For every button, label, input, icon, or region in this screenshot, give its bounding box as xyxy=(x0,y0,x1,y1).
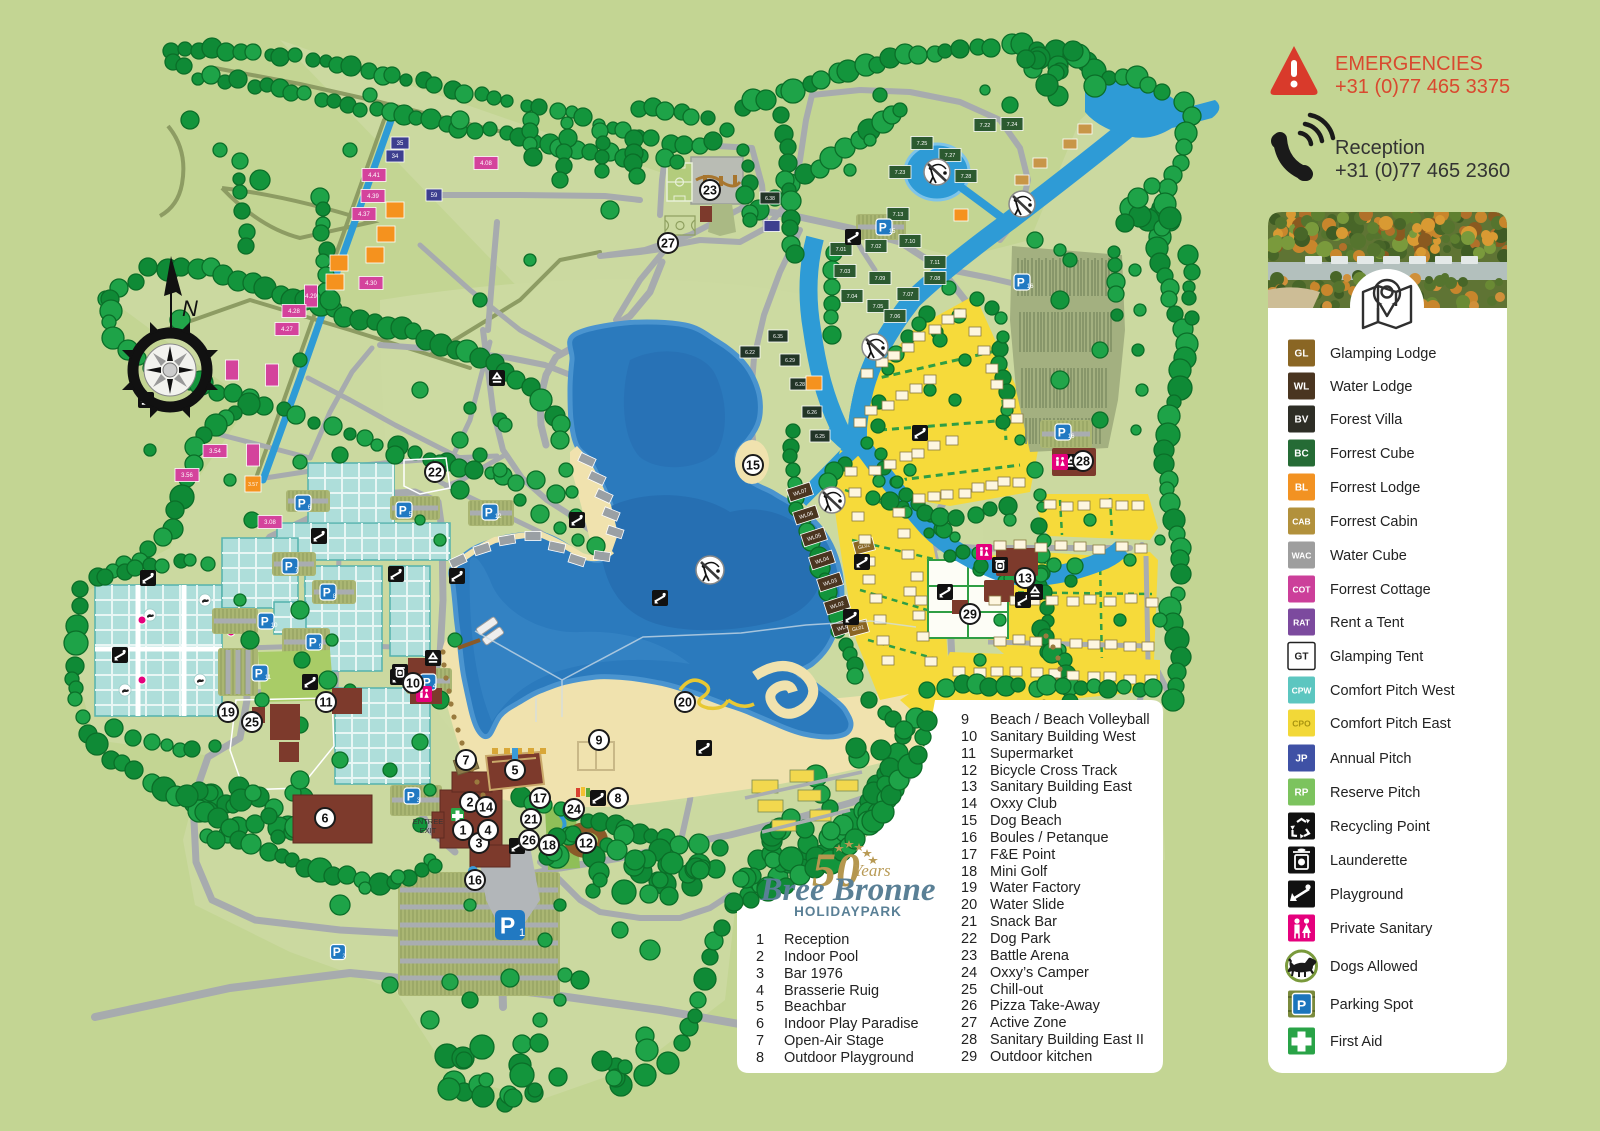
svg-text:F&E Point: F&E Point xyxy=(990,847,1055,863)
svg-text:4.41: 4.41 xyxy=(368,173,380,179)
svg-text:Bree Bronne: Bree Bronne xyxy=(759,872,935,908)
svg-text:26: 26 xyxy=(522,834,536,848)
svg-text:Outdoor kitchen: Outdoor kitchen xyxy=(990,1049,1092,1065)
svg-text:Reception: Reception xyxy=(784,932,849,948)
svg-text:23: 23 xyxy=(703,184,717,198)
svg-text:Recycling Point: Recycling Point xyxy=(1330,819,1430,835)
svg-text:19: 19 xyxy=(961,880,977,896)
svg-text:13: 13 xyxy=(961,779,977,795)
svg-text:Sanitary Building East II: Sanitary Building East II xyxy=(990,1032,1144,1048)
svg-text:25: 25 xyxy=(245,716,259,730)
svg-text:Dog Park: Dog Park xyxy=(990,931,1051,947)
svg-text:12: 12 xyxy=(961,763,977,779)
svg-text:9: 9 xyxy=(596,734,603,748)
svg-text:BV: BV xyxy=(1295,415,1309,426)
svg-text:16: 16 xyxy=(1027,284,1034,290)
svg-text:4.30: 4.30 xyxy=(365,281,377,287)
svg-text:15: 15 xyxy=(746,459,760,473)
svg-text:RAT: RAT xyxy=(1293,618,1311,628)
svg-text:Forrest Cottage: Forrest Cottage xyxy=(1330,582,1431,598)
svg-text:Reception: Reception xyxy=(1335,137,1425,159)
svg-text:7.10: 7.10 xyxy=(905,239,916,245)
svg-text:Chill-out: Chill-out xyxy=(990,982,1043,998)
svg-text:1: 1 xyxy=(756,932,764,948)
svg-text:12: 12 xyxy=(579,837,593,851)
svg-text:P: P xyxy=(485,505,493,519)
svg-text:21: 21 xyxy=(961,914,977,930)
svg-text:18: 18 xyxy=(961,864,977,880)
svg-text:Sanitary Building East: Sanitary Building East xyxy=(990,779,1132,795)
svg-text:P: P xyxy=(309,635,317,649)
svg-text:19: 19 xyxy=(221,706,235,720)
svg-text:27: 27 xyxy=(661,237,675,251)
svg-text:29: 29 xyxy=(963,608,977,622)
svg-text:23: 23 xyxy=(961,948,977,964)
svg-text:P: P xyxy=(285,559,293,573)
svg-text:7.13: 7.13 xyxy=(893,212,904,218)
svg-text:11: 11 xyxy=(961,746,976,762)
svg-text:Battle Arena: Battle Arena xyxy=(990,948,1070,964)
svg-text:7.02: 7.02 xyxy=(871,244,882,250)
svg-text:Bar 1976: Bar 1976 xyxy=(784,966,843,982)
svg-text:First Aid: First Aid xyxy=(1330,1034,1382,1050)
svg-text:6.29: 6.29 xyxy=(785,358,795,364)
svg-text:11: 11 xyxy=(319,696,332,710)
svg-text:4.27: 4.27 xyxy=(281,327,293,333)
svg-text:28: 28 xyxy=(1076,455,1090,469)
svg-text:Oxxy’s Camper: Oxxy’s Camper xyxy=(990,965,1089,981)
svg-text:26: 26 xyxy=(961,998,977,1014)
svg-text:Annual Pitch: Annual Pitch xyxy=(1330,751,1411,767)
svg-text:4.37: 4.37 xyxy=(358,212,370,218)
svg-text:Comfort Pitch East: Comfort Pitch East xyxy=(1330,716,1451,732)
svg-text:ENTREE: ENTREE xyxy=(413,817,443,826)
svg-text:Forrest Lodge: Forrest Lodge xyxy=(1330,480,1420,496)
svg-text:12: 12 xyxy=(495,514,502,520)
svg-text:7.07: 7.07 xyxy=(903,292,914,298)
svg-text:1: 1 xyxy=(519,927,525,939)
svg-text:6.28: 6.28 xyxy=(795,382,805,388)
svg-text:10: 10 xyxy=(961,729,977,745)
svg-text:Boules / Petanque: Boules / Petanque xyxy=(990,830,1109,846)
svg-text:20: 20 xyxy=(961,897,977,913)
svg-text:Beachbar: Beachbar xyxy=(784,999,846,1015)
svg-text:6.25: 6.25 xyxy=(815,434,825,440)
svg-text:EXIT: EXIT xyxy=(420,826,437,835)
svg-text:Active Zone: Active Zone xyxy=(990,1015,1067,1031)
svg-text:24: 24 xyxy=(961,965,977,981)
svg-text:Playground: Playground xyxy=(1330,887,1403,903)
svg-text:Forrest Cabin: Forrest Cabin xyxy=(1330,514,1418,530)
svg-text:P: P xyxy=(333,945,341,959)
svg-text:25: 25 xyxy=(961,982,977,998)
svg-text:4: 4 xyxy=(485,824,492,838)
svg-text:Sanitary Building West: Sanitary Building West xyxy=(990,729,1136,745)
svg-text:Bicycle Cross Track: Bicycle Cross Track xyxy=(990,763,1118,779)
svg-text:5: 5 xyxy=(756,999,764,1015)
svg-text:Mini Golf: Mini Golf xyxy=(990,864,1048,880)
svg-text:Glamping Tent: Glamping Tent xyxy=(1330,649,1423,665)
svg-text:Pizza Take-Away: Pizza Take-Away xyxy=(990,998,1101,1014)
svg-text:9: 9 xyxy=(961,712,969,728)
svg-text:HOLIDAYPARK: HOLIDAYPARK xyxy=(794,904,902,919)
svg-text:Water Factory: Water Factory xyxy=(990,880,1081,896)
svg-text:WL: WL xyxy=(1294,382,1310,393)
svg-text:Water Slide: Water Slide xyxy=(990,897,1064,913)
svg-text:BL: BL xyxy=(1295,483,1308,494)
svg-text:7.24: 7.24 xyxy=(1007,122,1018,128)
svg-text:34: 34 xyxy=(392,154,399,160)
svg-text:22: 22 xyxy=(428,466,442,480)
svg-text:2: 2 xyxy=(343,953,346,959)
svg-text:4.08: 4.08 xyxy=(480,161,492,167)
svg-text:7.06: 7.06 xyxy=(890,314,901,320)
svg-text:7.28: 7.28 xyxy=(961,174,972,180)
svg-text:16: 16 xyxy=(468,874,482,888)
svg-text:Parking Spot: Parking Spot xyxy=(1330,997,1413,1013)
svg-text:5: 5 xyxy=(512,764,519,778)
svg-text:GT: GT xyxy=(1295,652,1309,663)
svg-text:7.11: 7.11 xyxy=(930,260,940,266)
svg-text:Dogs Allowed: Dogs Allowed xyxy=(1330,959,1418,975)
svg-text:Forrest Cube: Forrest Cube xyxy=(1330,446,1415,462)
svg-text:7.01: 7.01 xyxy=(836,247,847,253)
svg-text:4.39: 4.39 xyxy=(367,194,379,200)
svg-text:7.08: 7.08 xyxy=(930,276,941,282)
svg-text:15: 15 xyxy=(889,229,896,235)
svg-text:CAB: CAB xyxy=(1292,517,1310,527)
svg-text:7.25: 7.25 xyxy=(917,141,928,147)
svg-text:P: P xyxy=(1017,275,1025,289)
svg-text:GL: GL xyxy=(1295,349,1309,360)
svg-text:7.27: 7.27 xyxy=(945,153,956,159)
svg-text:13: 13 xyxy=(1018,572,1032,586)
svg-text:+31 (0)77 465 3375: +31 (0)77 465 3375 xyxy=(1335,76,1510,98)
svg-text:21: 21 xyxy=(524,813,538,827)
svg-text:4: 4 xyxy=(756,983,764,999)
svg-text:3.54: 3.54 xyxy=(209,449,221,455)
svg-text:Forest Villa: Forest Villa xyxy=(1330,412,1403,428)
svg-text:WAC: WAC xyxy=(1292,551,1312,561)
svg-text:EMERGENCIES: EMERGENCIES xyxy=(1335,53,1483,75)
svg-text:11: 11 xyxy=(265,675,272,681)
svg-text:P: P xyxy=(500,912,515,938)
svg-text:P: P xyxy=(399,503,407,517)
svg-text:14: 14 xyxy=(479,801,493,815)
svg-text:CPO: CPO xyxy=(1292,719,1311,729)
svg-text:Indoor Pool: Indoor Pool xyxy=(784,949,858,965)
svg-text:16: 16 xyxy=(961,830,977,846)
svg-text:2: 2 xyxy=(756,949,764,965)
svg-text:16: 16 xyxy=(1068,434,1075,440)
svg-text:14: 14 xyxy=(961,796,977,812)
svg-text:Private Sanitary: Private Sanitary xyxy=(1330,921,1433,937)
svg-text:Supermarket: Supermarket xyxy=(990,746,1073,762)
svg-text:10: 10 xyxy=(271,623,278,629)
svg-text:7.23: 7.23 xyxy=(895,170,906,176)
svg-text:3: 3 xyxy=(756,966,764,982)
svg-text:6.38: 6.38 xyxy=(765,196,775,202)
svg-text:29: 29 xyxy=(961,1049,977,1065)
svg-text:P: P xyxy=(879,220,887,234)
svg-text:8: 8 xyxy=(756,1050,764,1066)
svg-text:P: P xyxy=(1297,997,1306,1013)
svg-text:JP: JP xyxy=(1295,754,1308,765)
svg-text:Launderette: Launderette xyxy=(1330,853,1407,869)
svg-text:1: 1 xyxy=(460,824,467,838)
svg-text:Oxxy Club: Oxxy Club xyxy=(990,796,1057,812)
svg-text:6.22: 6.22 xyxy=(745,350,755,356)
svg-text:N: N xyxy=(182,296,198,321)
svg-text:59: 59 xyxy=(431,193,438,199)
svg-text:15: 15 xyxy=(961,813,977,829)
svg-text:3.08: 3.08 xyxy=(264,520,276,526)
svg-text:7.04: 7.04 xyxy=(847,294,858,300)
svg-text:17: 17 xyxy=(533,792,547,806)
svg-text:Water Cube: Water Cube xyxy=(1330,548,1407,564)
svg-text:Rent a Tent: Rent a Tent xyxy=(1330,615,1404,631)
svg-text:P: P xyxy=(261,614,269,628)
svg-text:+31 (0)77 465 2360: +31 (0)77 465 2360 xyxy=(1335,160,1510,182)
svg-text:22: 22 xyxy=(961,931,977,947)
svg-text:6.26: 6.26 xyxy=(807,410,817,416)
svg-text:P: P xyxy=(255,666,263,680)
svg-text:6.35: 6.35 xyxy=(773,334,783,340)
svg-text:Beach / Beach Volleyball: Beach / Beach Volleyball xyxy=(990,712,1150,728)
svg-text:CPW: CPW xyxy=(1292,686,1313,696)
svg-text:35: 35 xyxy=(397,141,404,147)
svg-text:20: 20 xyxy=(678,696,692,710)
svg-text:7: 7 xyxy=(756,1033,764,1049)
svg-text:Comfort Pitch West: Comfort Pitch West xyxy=(1330,683,1455,699)
svg-text:Reserve Pitch: Reserve Pitch xyxy=(1330,785,1420,801)
svg-text:P: P xyxy=(1058,425,1066,439)
svg-text:Brasserie Ruig: Brasserie Ruig xyxy=(784,983,879,999)
svg-text:7: 7 xyxy=(463,754,470,768)
svg-text:10: 10 xyxy=(406,677,420,691)
svg-text:7.09: 7.09 xyxy=(875,276,886,282)
svg-text:3.56: 3.56 xyxy=(181,473,193,479)
svg-text:Snack Bar: Snack Bar xyxy=(990,914,1057,930)
svg-text:Indoor Play Paradise: Indoor Play Paradise xyxy=(784,1016,919,1032)
svg-text:4.28: 4.28 xyxy=(288,309,300,315)
svg-text:4.29: 4.29 xyxy=(305,294,317,300)
svg-text:8: 8 xyxy=(615,792,622,806)
svg-text:27: 27 xyxy=(961,1015,977,1031)
svg-text:COT: COT xyxy=(1293,585,1312,595)
svg-text:Glamping Lodge: Glamping Lodge xyxy=(1330,346,1436,362)
svg-text:6: 6 xyxy=(756,1016,764,1032)
svg-text:P: P xyxy=(298,496,306,510)
svg-text:Outdoor Playground: Outdoor Playground xyxy=(784,1050,914,1066)
svg-text:7.03: 7.03 xyxy=(840,269,851,275)
svg-text:17: 17 xyxy=(961,847,977,863)
svg-text:Water Lodge: Water Lodge xyxy=(1330,379,1412,395)
svg-text:24: 24 xyxy=(567,803,581,817)
svg-text:7.22: 7.22 xyxy=(980,123,991,129)
svg-text:Open-Air Stage: Open-Air Stage xyxy=(784,1033,884,1049)
svg-text:18: 18 xyxy=(542,839,556,853)
svg-text:2: 2 xyxy=(467,796,474,810)
svg-text:P: P xyxy=(407,789,415,803)
svg-text:28: 28 xyxy=(961,1032,977,1048)
svg-text:P: P xyxy=(323,585,331,599)
svg-text:BC: BC xyxy=(1294,449,1308,460)
svg-text:RP: RP xyxy=(1295,788,1309,799)
svg-text:Dog Beach: Dog Beach xyxy=(990,813,1062,829)
svg-text:3.57: 3.57 xyxy=(248,482,258,488)
svg-text:6: 6 xyxy=(322,812,329,826)
svg-text:7.05: 7.05 xyxy=(873,304,884,310)
